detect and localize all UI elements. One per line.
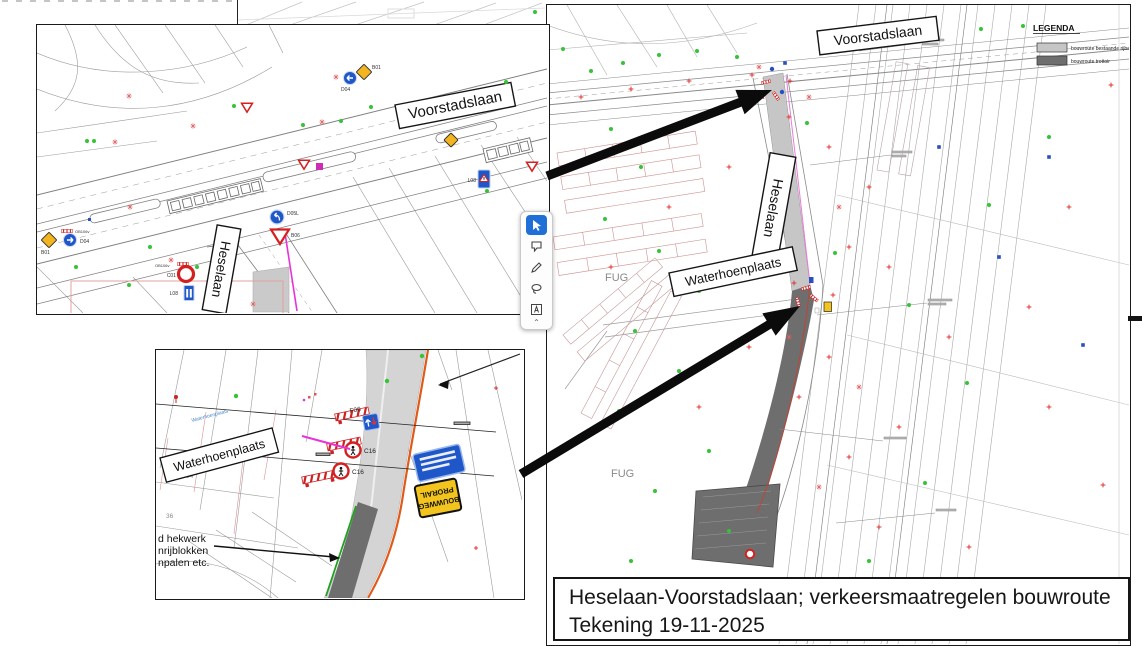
sign-d04-left (64, 234, 77, 247)
sign-label-l08-right: L08 (468, 178, 477, 184)
sign-f06 (362, 413, 379, 430)
main-map-panel: FUG FUG Voorstadslaan Heselaan Waterhoen… (546, 4, 1131, 646)
sign-label-l08-mid: L08 (170, 291, 179, 297)
legend-swatch-light (1037, 43, 1067, 52)
sign-label-d04-top: D04 (341, 87, 350, 93)
tool-comment-button[interactable] (526, 236, 547, 256)
drawing-title-line1: Heselaan-Voorstadslaan; verkeersmaatrege… (569, 584, 1114, 612)
sheet-edge-tick (1128, 316, 1142, 321)
page-canvas: FUG FUG Voorstadslaan Heselaan Waterhoen… (0, 0, 1148, 646)
sign-d05l (270, 210, 284, 224)
svg-text:d hekwerk: d hekwerk (158, 533, 207, 545)
label-voorstadslaan-main: Voorstadslaan (817, 16, 939, 54)
annotation-toolbar: ⌃ (520, 211, 553, 330)
inset1-red-outline (71, 281, 283, 313)
sign-label-ob106-left: OB106v (75, 229, 89, 234)
inset1-work-area (253, 267, 289, 312)
inset-detail-panel: F06 C16 C16 (155, 349, 525, 600)
route-end-marker (746, 550, 754, 558)
hekwerk-note: d hekwerk nrijblokken npalen etc. (158, 533, 209, 569)
sign-b01-top (356, 64, 372, 80)
parcel-number-36: 36 (166, 513, 174, 520)
inset1-block-marking-east (483, 138, 533, 163)
sign-c16-b (334, 464, 349, 479)
legend-title: LEGENDA (1033, 23, 1075, 33)
sign-info-blue (412, 444, 465, 482)
drawing-title-block: Heselaan-Voorstadslaan; verkeersmaatrege… (553, 577, 1130, 641)
sign-c01 (179, 267, 194, 282)
sign-label-c16-a: C16 (364, 448, 376, 455)
sign-label-d05l: D05L (287, 211, 299, 217)
parcel-lines-nw (547, 5, 757, 75)
svg-text:nrijblokken: nrijblokken (158, 545, 208, 557)
sign-b01-left (41, 232, 57, 248)
cursor-icon (530, 219, 543, 232)
sign-label-b01-left: B01 (41, 250, 50, 256)
tool-lasso-button[interactable] (526, 278, 547, 298)
legend-label-dark: bouwroute trottoir (1071, 59, 1110, 65)
tool-draw-button[interactable] (526, 257, 547, 277)
magenta-marker (316, 163, 323, 170)
background-map-strip-drawing (238, 0, 545, 25)
inset-overview-drawing: B01 D04 L08 D05L (37, 25, 547, 313)
legend-label-light: bouwroute bestaande rijbaan (1071, 46, 1129, 52)
sign-label-c16-b: C16 (352, 469, 364, 476)
waterhoenplaats-road-lines (565, 299, 799, 389)
background-map-strip (237, 0, 546, 26)
sign-l08-right (478, 170, 490, 188)
sign-bouwweg-yellow: BOUWWEG PRORAIL (414, 478, 461, 517)
label-heselaan-inset1: Heselaan (202, 225, 241, 313)
tool-text-button[interactable] (526, 299, 547, 319)
street-name-small: Waterhoenplaats (191, 408, 229, 424)
sign-c16-a (346, 443, 361, 458)
inset1-blue-dot (88, 218, 91, 221)
comment-icon (530, 240, 543, 253)
rail-corridor-lines (779, 5, 1129, 644)
sign-label-c01: C01 (167, 273, 176, 279)
sign-l08-mid (184, 286, 194, 301)
top-edge-dashes (2, 0, 232, 2)
pencil-icon (530, 261, 543, 274)
inset1-traffic-islands (89, 121, 497, 224)
inset-overview-panel: B01 D04 L08 D05L (36, 24, 550, 315)
sign-label-d04-left: D04 (80, 239, 89, 245)
label-voorstadslaan-inset1: Voorstadslaan (395, 82, 515, 128)
drawing-title-line2: Tekening 19-11-2025 (569, 612, 1114, 640)
tool-select-button[interactable] (526, 215, 547, 235)
area-label-fug-north: FUG (605, 272, 628, 284)
sign-label-b06: B06 (291, 233, 300, 239)
text-box-icon (530, 303, 543, 316)
label-waterhoenplaats-main: Waterhoenplaats (669, 247, 797, 297)
sign-label-ob106-mid: OB106v (155, 263, 169, 268)
inset-detail-drawing: F06 C16 C16 (156, 350, 522, 598)
legend-swatch-dark (1037, 56, 1067, 65)
lasso-icon (530, 282, 543, 295)
sign-d04-top (344, 72, 357, 85)
label-waterhoenplaats-inset2: Waterhoenplaats (160, 428, 279, 482)
barrier-left (62, 229, 73, 232)
route-dark-flare (692, 484, 780, 567)
sign-label-b01-top: B01 (372, 65, 381, 71)
barrier-3 (302, 470, 338, 488)
svg-text:npalen etc.: npalen etc. (158, 557, 209, 569)
inset2-leader-arrowhead (438, 380, 449, 389)
main-map-drawing: FUG FUG Voorstadslaan Heselaan Waterhoen… (547, 5, 1129, 644)
area-label-fug-south: FUG (611, 468, 634, 480)
sign-b06-small-1 (242, 103, 253, 112)
toolbar-collapse-chevron[interactable]: ⌃ (533, 320, 540, 327)
route-dark-band (742, 285, 814, 509)
